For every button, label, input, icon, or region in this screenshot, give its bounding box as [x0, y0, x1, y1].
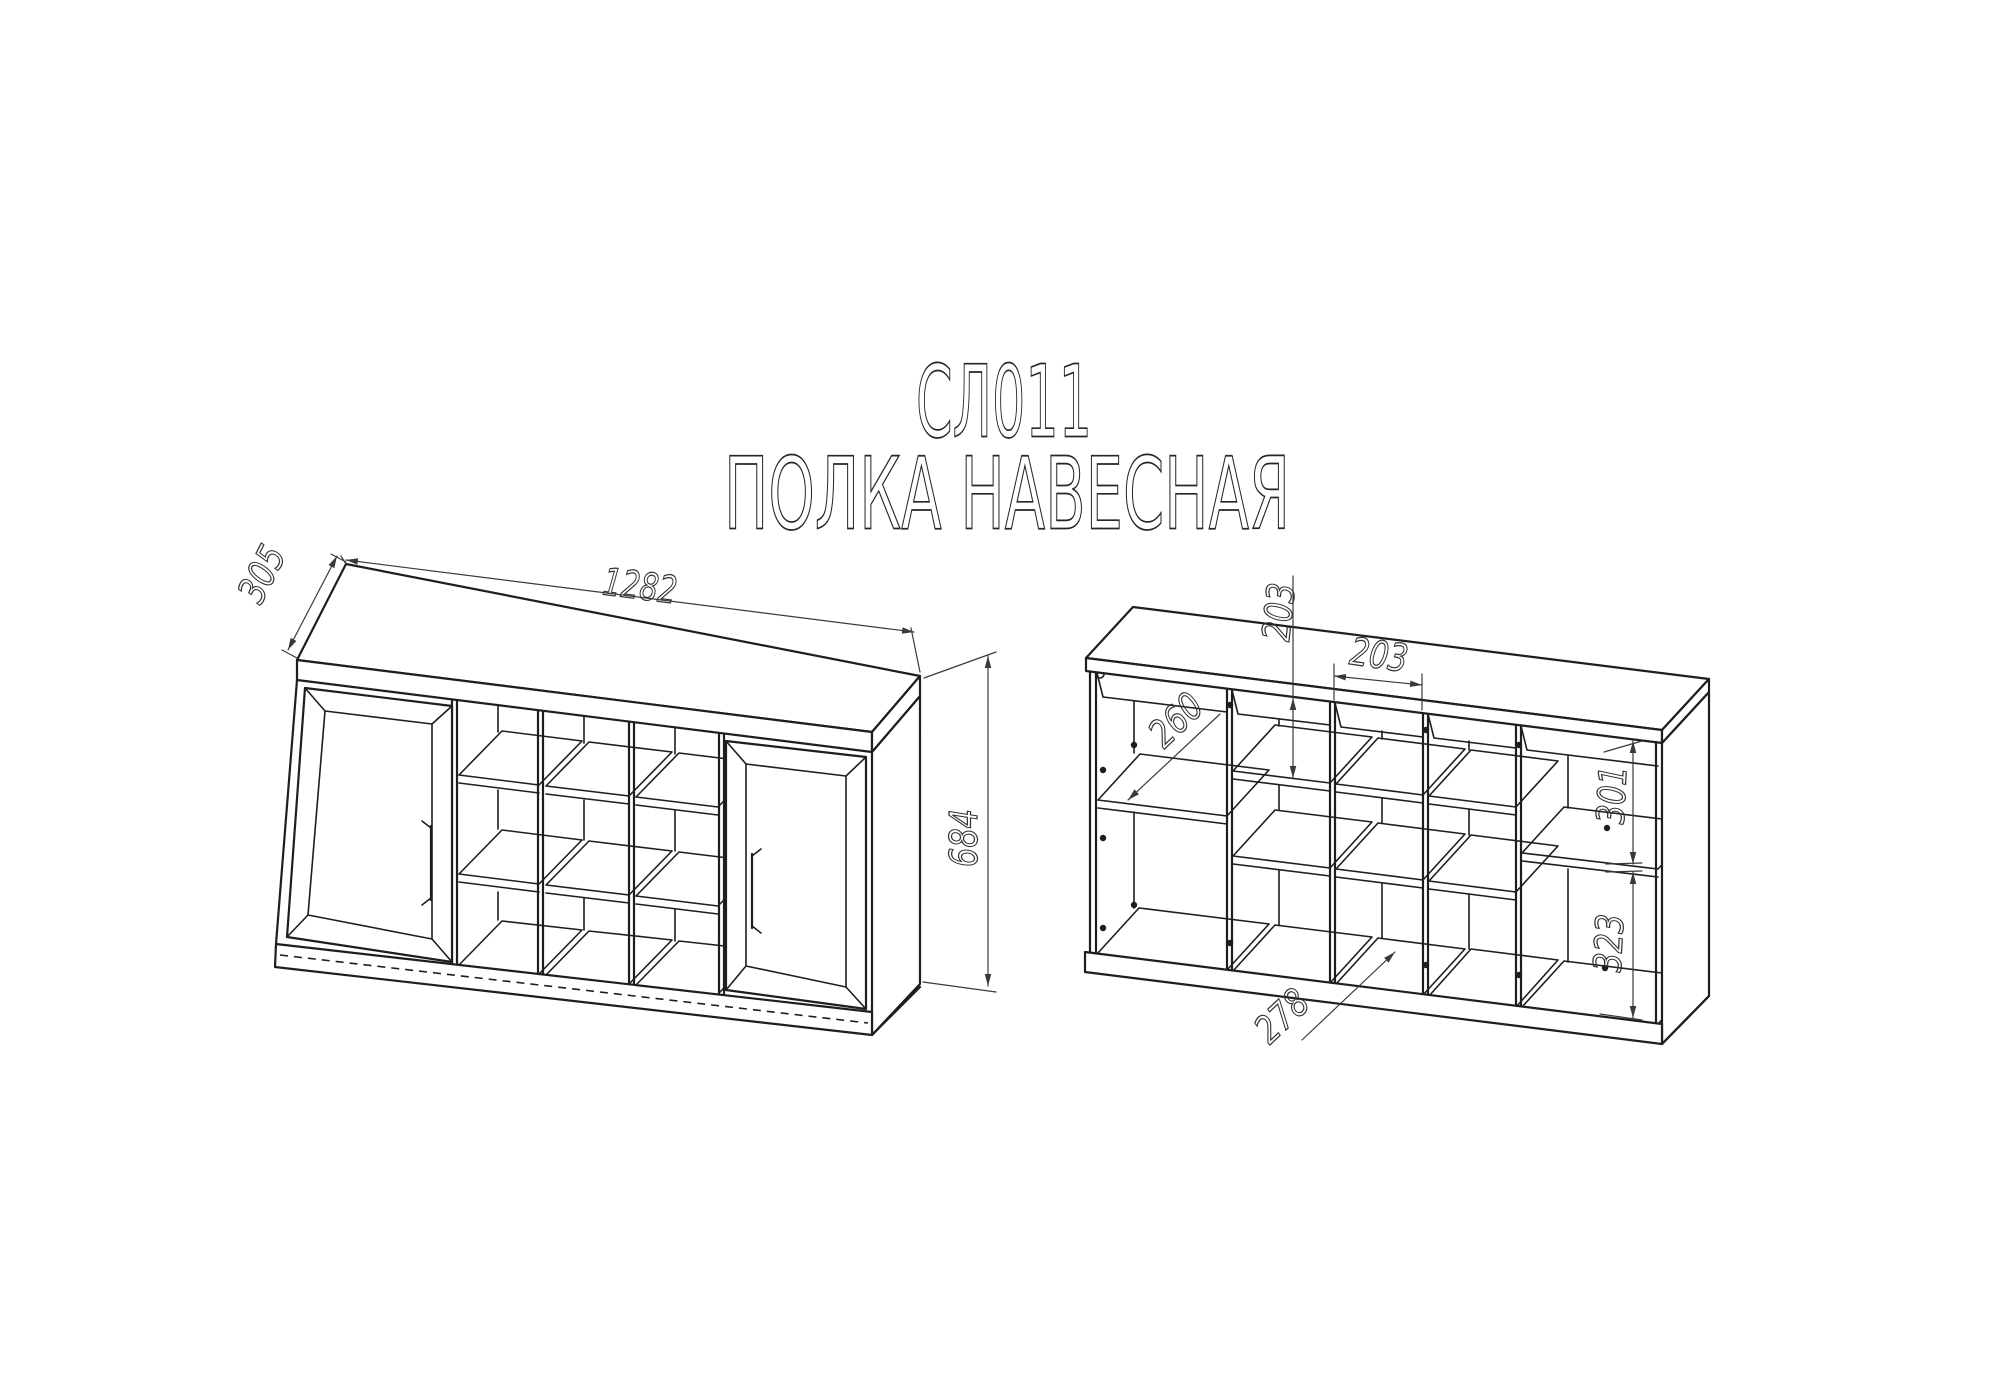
- dim-lower-right-cell: 323: [1586, 913, 1633, 973]
- drawing-sheet: СЛ011 ПОЛКА НАВЕСНАЯ: [0, 0, 2000, 1400]
- dim-cell-width: 203: [1347, 629, 1411, 681]
- dim-upper-right-cell: 301: [1589, 765, 1636, 825]
- dim-width: 1282: [601, 559, 680, 612]
- dim-depth: 305: [229, 538, 295, 610]
- product-name: ПОЛКА НАВЕСНАЯ: [724, 436, 1290, 553]
- dim-shelf-depth: 260: [1140, 684, 1212, 756]
- door-right: [726, 741, 866, 1009]
- technical-drawing: СЛ011 ПОЛКА НАВЕСНАЯ: [0, 0, 2000, 1400]
- dim-height: 684: [942, 809, 986, 867]
- open-side-panel-right: [1662, 692, 1709, 1044]
- open-view: 203 203 260 301 323 278: [1085, 576, 1709, 1052]
- side-panel-right: [872, 696, 920, 1035]
- title-block: СЛ011 ПОЛКА НАВЕСНАЯ: [724, 344, 1290, 553]
- door-left: [287, 688, 452, 962]
- dim-cell-height: 203: [1254, 581, 1304, 643]
- closed-view: 305 1282 684: [229, 538, 996, 1035]
